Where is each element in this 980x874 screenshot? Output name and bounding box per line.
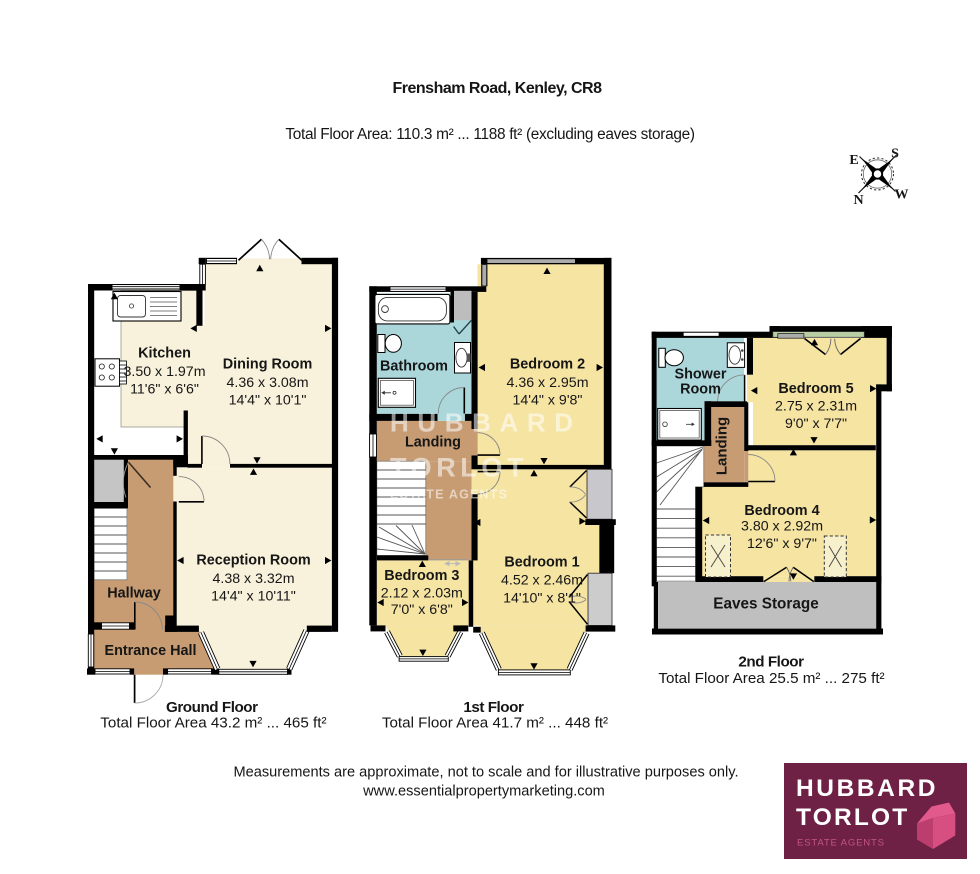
svg-text:ESTATE AGENTS: ESTATE AGENTS — [797, 838, 885, 849]
svg-text:Shower: Shower — [675, 367, 727, 383]
svg-text:2.12 x 2.03m: 2.12 x 2.03m — [381, 586, 463, 602]
svg-text:4.52 x 2.46m: 4.52 x 2.46m — [501, 573, 583, 589]
svg-text:Bedroom 5: Bedroom 5 — [778, 381, 853, 397]
svg-text:www.essentialpropertymarketing: www.essentialpropertymarketing.com — [362, 784, 605, 800]
svg-text:Total Floor Area: 110.3 m² ...: Total Floor Area: 110.3 m² ... 1188 ft² … — [285, 126, 695, 143]
svg-text:Measurements are approximate,: Measurements are approximate, not to sca… — [233, 765, 738, 781]
svg-text:Frensham Road, Kenley, CR8: Frensham Road, Kenley, CR8 — [393, 80, 603, 97]
svg-text:14'4" x 9'8": 14'4" x 9'8" — [513, 393, 583, 409]
svg-text:HUBBARD: HUBBARD — [390, 408, 582, 438]
svg-text:W: W — [895, 188, 909, 203]
svg-text:Dining Room: Dining Room — [223, 357, 313, 373]
svg-text:7'0" x 6'8": 7'0" x 6'8" — [391, 602, 453, 618]
svg-text:11'6" x 6'6": 11'6" x 6'6" — [130, 382, 199, 398]
svg-text:Hallway: Hallway — [107, 586, 161, 602]
svg-text:Entrance Hall: Entrance Hall — [105, 643, 197, 659]
svg-text:14'10" x 8'1": 14'10" x 8'1" — [503, 591, 581, 607]
svg-text:Bedroom 3: Bedroom 3 — [384, 568, 459, 584]
svg-text:3.50 x 1.97m: 3.50 x 1.97m — [123, 364, 205, 380]
svg-text:E: E — [849, 153, 858, 168]
svg-text:4.36 x 2.95m: 4.36 x 2.95m — [506, 375, 588, 391]
svg-text:Landing: Landing — [714, 417, 731, 475]
svg-text:Bedroom 4: Bedroom 4 — [744, 503, 819, 519]
svg-text:S: S — [891, 147, 899, 162]
svg-text:HUBBARD: HUBBARD — [796, 775, 938, 802]
svg-text:1st Floor: 1st Floor — [463, 699, 524, 716]
svg-text:Total Floor Area 25.5 m² ... 2: Total Floor Area 25.5 m² ... 275 ft² — [658, 670, 884, 687]
svg-text:Bathroom: Bathroom — [380, 359, 448, 375]
svg-text:Room: Room — [680, 382, 721, 398]
svg-text:Reception Room: Reception Room — [196, 553, 310, 569]
svg-text:2.75 x 2.31m: 2.75 x 2.31m — [775, 399, 857, 415]
svg-text:Bedroom 1: Bedroom 1 — [504, 555, 579, 571]
svg-text:2nd Floor: 2nd Floor — [738, 654, 804, 671]
svg-text:4.36 x 3.08m: 4.36 x 3.08m — [226, 375, 308, 391]
svg-text:Total Floor Area 43.2 m² ... 4: Total Floor Area 43.2 m² ... 465 ft² — [100, 715, 326, 732]
svg-text:4.38 x 3.32m: 4.38 x 3.32m — [212, 571, 294, 587]
svg-text:TORLOT: TORLOT — [390, 453, 528, 483]
svg-text:3.80 x 2.92m: 3.80 x 2.92m — [741, 519, 823, 535]
svg-text:ESTATE AGENTS: ESTATE AGENTS — [390, 488, 508, 502]
svg-text:Ground Floor: Ground Floor — [166, 699, 258, 716]
svg-text:14'4" x 10'11": 14'4" x 10'11" — [211, 589, 296, 605]
svg-text:TORLOT: TORLOT — [796, 804, 909, 831]
svg-text:N: N — [853, 193, 863, 208]
svg-text:Total Floor Area 41.7 m² ... 4: Total Floor Area 41.7 m² ... 448 ft² — [382, 715, 608, 732]
svg-text:12'6" x 9'7": 12'6" x 9'7" — [747, 536, 817, 552]
svg-text:Bedroom 2: Bedroom 2 — [510, 357, 585, 373]
svg-text:Kitchen: Kitchen — [138, 346, 191, 362]
svg-text:Eaves Storage: Eaves Storage — [713, 596, 818, 613]
svg-text:9'0" x 7'7": 9'0" x 7'7" — [785, 416, 847, 432]
svg-text:14'4" x 10'1": 14'4" x 10'1" — [229, 393, 307, 409]
